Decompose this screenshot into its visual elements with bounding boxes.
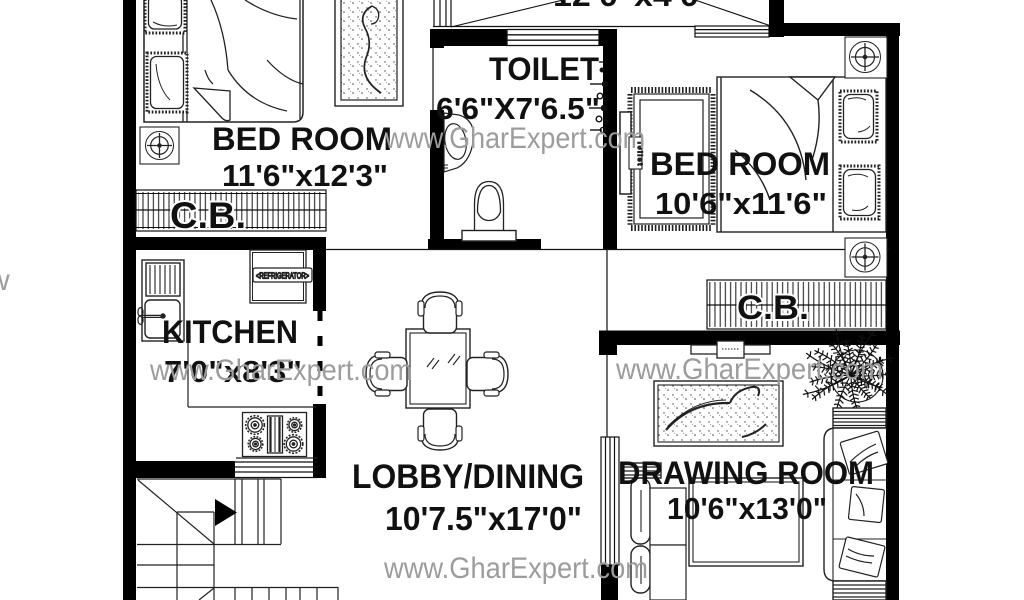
svg-text:www.GharExpert.com: www.GharExpert.com bbox=[383, 552, 648, 585]
svg-text:TOILET: TOILET bbox=[489, 51, 599, 87]
svg-text:DRAWING ROOM: DRAWING ROOM bbox=[618, 455, 874, 491]
svg-text:10'7.5"x17'0": 10'7.5"x17'0" bbox=[385, 500, 582, 537]
svg-text:<REFRIGERATOR>: <REFRIGERATOR> bbox=[256, 272, 309, 281]
svg-text:www.GharExpert.com: www.GharExpert.com bbox=[384, 122, 645, 155]
svg-text:www.GharExpert.com: www.GharExpert.com bbox=[615, 353, 883, 386]
svg-text:www.GharExpert.com: www.GharExpert.com bbox=[149, 354, 412, 387]
svg-text:LOBBY/DINING: LOBBY/DINING bbox=[352, 458, 584, 496]
svg-text:C.B.: C.B. bbox=[737, 289, 809, 327]
svg-text:BED ROOM: BED ROOM bbox=[212, 121, 392, 157]
svg-text:10'6"x11'6": 10'6"x11'6" bbox=[655, 186, 827, 221]
svg-text:11'6"x12'3": 11'6"x12'3" bbox=[222, 158, 388, 193]
svg-text:KITCHEN: KITCHEN bbox=[162, 314, 298, 350]
svg-text:w: w bbox=[0, 264, 10, 297]
svg-text:12'0"x4'0": 12'0"x4'0" bbox=[553, 0, 715, 13]
svg-text:6'6"X7'6.5": 6'6"X7'6.5" bbox=[436, 91, 600, 126]
svg-text:10'6"x13'0": 10'6"x13'0" bbox=[667, 491, 827, 526]
svg-text:C.B.: C.B. bbox=[170, 195, 246, 236]
svg-text:BED ROOM: BED ROOM bbox=[650, 146, 830, 182]
